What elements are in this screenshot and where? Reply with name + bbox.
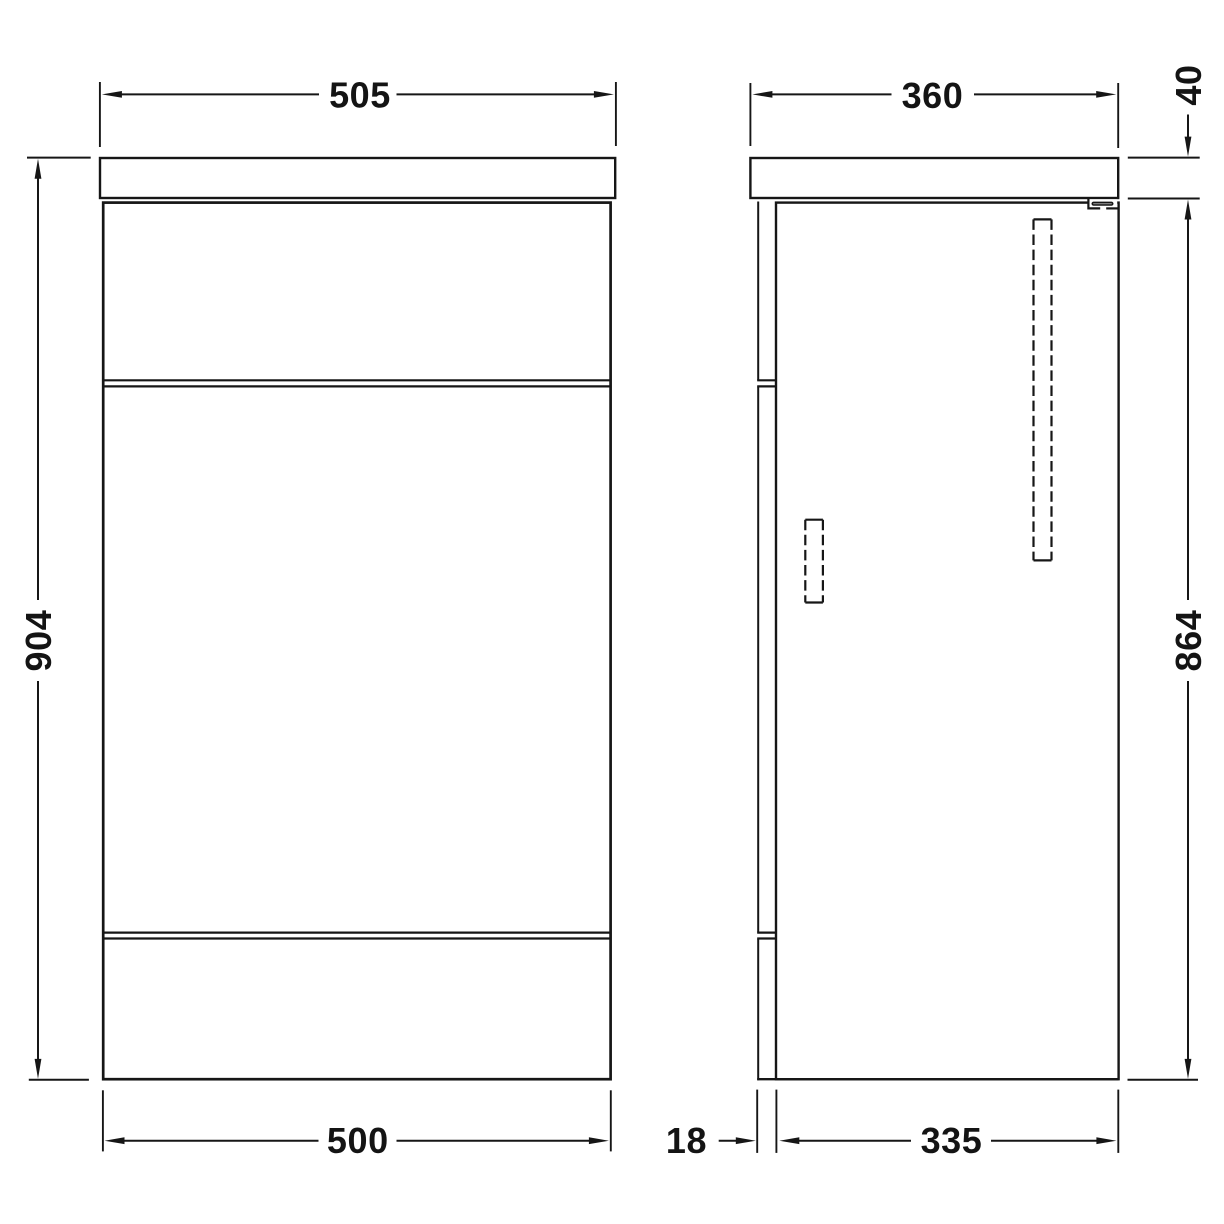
svg-text:505: 505 (329, 75, 391, 116)
svg-text:864: 864 (1168, 610, 1209, 672)
svg-text:335: 335 (921, 1120, 983, 1161)
svg-text:500: 500 (327, 1120, 389, 1161)
svg-text:904: 904 (18, 610, 59, 672)
svg-text:18: 18 (666, 1120, 707, 1161)
svg-text:360: 360 (902, 75, 964, 116)
svg-text:40: 40 (1168, 64, 1209, 105)
